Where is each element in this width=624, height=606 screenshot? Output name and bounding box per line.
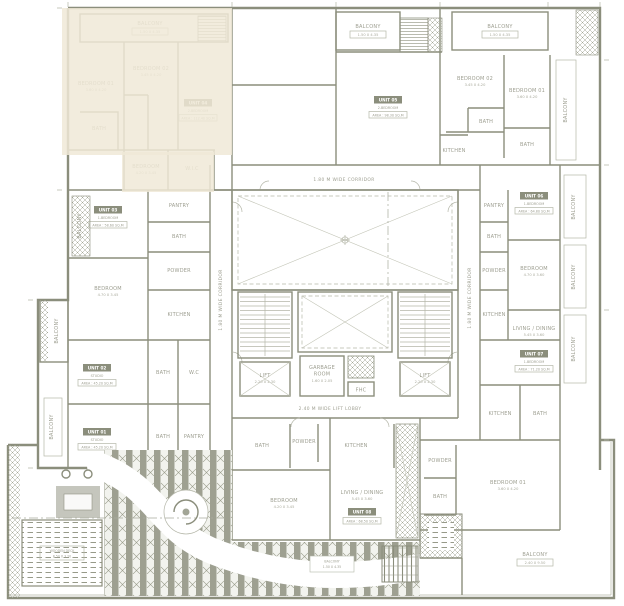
- right-wing: PANTRY BATH POWDER KITCHEN BEDROOM 4.70 …: [420, 165, 586, 440]
- ac-louvre-tm: [400, 18, 428, 52]
- room-label-balcony-tm: BALCONY: [355, 24, 381, 30]
- central-core: LIFT 2.20 X 2.30 LIFT 2.20 X 2.30 GARBAG…: [232, 290, 458, 396]
- unit-05-name: UNIT 05: [379, 98, 398, 103]
- lift-right-dims: 2.20 X 2.30: [415, 380, 436, 384]
- unit-03-area: AREA : 58.60 SQ.M: [92, 223, 123, 227]
- top-right-wing: BALCONY 1.50 X 4.35 BEDROOM 02 3.45 X 4.…: [440, 10, 598, 165]
- unit-02-area: AREA : 45.20 SQ.M: [81, 381, 112, 385]
- lift-left-dims: 2.20 X 2.30: [255, 380, 276, 384]
- unit-08-label[interactable]: UNIT 08 AREA : 68.50 SQ.M: [343, 508, 381, 524]
- room-label-pantry-l2: PANTRY: [184, 434, 205, 440]
- stair-left: [238, 292, 292, 358]
- room-label-bath-l2: BATH: [156, 370, 170, 376]
- unit-06-label[interactable]: UNIT 06 1-BEDROOM AREA : 64.80 SQ.M: [515, 192, 553, 214]
- room-label-bed-bc: BEDROOM: [270, 498, 298, 504]
- unit-01-type: STUDIO: [91, 438, 104, 442]
- room-label-kitchen-r: KITCHEN: [482, 312, 505, 318]
- room-label-powder-br: POWDER: [428, 458, 452, 464]
- room-label-balcony-lw3: BALCONY: [49, 414, 55, 440]
- unit-06-type: 1-BEDROOM: [524, 202, 545, 206]
- room-label-balcony-lw2: BALCONY: [54, 318, 60, 344]
- fhc-cabinet: FHC: [348, 382, 374, 396]
- room-label-bath2-tr: BATH: [520, 142, 534, 148]
- room-label-powder-r: POWDER: [482, 268, 506, 274]
- terrace-edge-hatch: [8, 445, 20, 598]
- lift-lobby-label: 2.40 M WIDE LIFT LOBBY: [299, 406, 362, 412]
- room-dims-bed-l: 4.70 X 3.45: [98, 293, 119, 297]
- room-dims-balcony-tm: 1.50 X 4.35: [358, 33, 379, 37]
- selected-unit-highlight[interactable]: [62, 8, 232, 192]
- unit-02-type: STUDIO: [91, 374, 104, 378]
- room-dims-living-r: 5.45 X 3.60: [524, 333, 545, 337]
- room-dims-bed-bc: 4.20 X 3.45: [274, 505, 295, 509]
- room-label-living-r: LIVING / DINING: [513, 326, 556, 332]
- fhc-label: FHC: [356, 388, 367, 394]
- corridors: 1.80 M WIDE CORRIDOR 1.80 M WIDE CORRIDO…: [210, 177, 480, 427]
- core-shaft: [298, 292, 392, 352]
- room-label-bed01-tr: BEDROOM 01: [509, 88, 545, 94]
- room-label-powder-bc: POWDER: [292, 439, 316, 445]
- garbage-label-2: ROOM: [314, 372, 330, 378]
- top-middle-wing: BALCONY 1.50 X 4.35 UNIT 05 2-BEDROOM AR…: [232, 8, 600, 165]
- room-label-bed-l: BEDROOM: [94, 286, 122, 292]
- room-label-bath-r2: BATH: [533, 411, 547, 417]
- trellis-grid: [382, 546, 418, 582]
- unit-07-area: AREA : 71.20 SQ.M: [518, 367, 549, 371]
- balcony-hatch-lw2: [40, 300, 48, 362]
- deck-dims: 8.50 X 3.20: [53, 555, 71, 559]
- room-label-kitchen-l: KITCHEN: [167, 312, 190, 318]
- unit-03-label[interactable]: UNIT 03 1-BEDROOM AREA : 58.60 SQ.M: [89, 206, 127, 228]
- room-dims-bed02-tr: 3.45 X 4.20: [465, 83, 486, 87]
- terrace-balcony-left-label: BALCONY 1.50 X 4.35: [310, 556, 354, 572]
- room-dims-balcony-terr: 2.40 X 9.50: [525, 561, 546, 565]
- room-label-wc-l: W.C: [189, 370, 199, 376]
- room-label-bed02-tr: BEDROOM 02: [457, 76, 493, 82]
- jacuzzi-planter: [420, 514, 462, 558]
- left-wing: PANTRY BATH POWDER KITCHEN BATH W.C BATH…: [40, 165, 210, 468]
- room-dims-bed01-tr: 3.60 X 4.20: [517, 95, 538, 99]
- lift-right-label: LIFT: [420, 373, 432, 379]
- room-label-bath-l1: BATH: [172, 234, 186, 240]
- unit-01-area: AREA : 45.20 SQ.M: [81, 445, 112, 449]
- room-label-kitchen-r2: KITCHEN: [488, 411, 511, 417]
- lift-left: LIFT 2.20 X 2.30: [240, 362, 290, 396]
- room-label-bed-br: BEDROOM 01: [490, 480, 526, 486]
- unit-05-area: AREA : 98.30 SQ.M: [372, 113, 403, 117]
- corridor-walls: [210, 190, 480, 418]
- room-label-pantry-l: PANTRY: [169, 203, 190, 209]
- room-label-balcony-terr: BALCONY: [522, 552, 548, 558]
- room-dims-living-bc: 5.45 X 3.60: [352, 497, 373, 501]
- garbage-dims: 1.60 X 2.05: [312, 379, 333, 383]
- unit-08-name: UNIT 08: [353, 510, 372, 515]
- unit-07-name: UNIT 07: [525, 352, 544, 357]
- unit-02-label[interactable]: UNIT 02 STUDIO AREA : 45.20 SQ.M: [78, 364, 116, 386]
- room-label-balcony-chip: BALCONY: [324, 560, 339, 564]
- room-label-living-bc: LIVING / DINING: [341, 490, 384, 496]
- floor-plan-canvas: BALCONY 1.50 X 4.35 BEDROOM 01 3.60 X 4.…: [0, 0, 624, 606]
- corridor-right-label: 1.80 M WIDE CORRIDOR: [467, 267, 473, 328]
- unit-08-walls: [232, 418, 420, 558]
- atrium-void: [232, 190, 458, 290]
- garbage-label-1: GARBAGE: [309, 365, 335, 371]
- room-label-balcony-tr-side: BALCONY: [563, 97, 569, 123]
- unit-03-name: UNIT 03: [99, 208, 118, 213]
- room-dims-bed-r: 4.70 X 3.60: [524, 273, 545, 277]
- unit-05-type: 2-BEDROOM: [378, 106, 399, 110]
- room-label-balcony-tr: BALCONY: [487, 24, 513, 30]
- unit-02-name: UNIT 02: [88, 366, 107, 371]
- room-label-kitchen-tr: KITCHEN: [442, 148, 465, 154]
- door-arcs: [232, 181, 458, 427]
- room-dims-balcony-chip: 1.50 X 4.35: [323, 565, 341, 569]
- terrace-landscape: WOODEN DECK 8.50 X 3.20 BALCONY 2.40 X 9…: [8, 445, 553, 598]
- room-label-powder-l: POWDER: [167, 268, 191, 274]
- unit-05-label[interactable]: UNIT 05 2-BEDROOM AREA : 98.30 SQ.M: [369, 96, 407, 118]
- unit-08-bottom-center: BATH POWDER KITCHEN BEDROOM 4.20 X 3.45 …: [232, 418, 420, 558]
- room-label-balcony-re3: BALCONY: [571, 336, 577, 362]
- room-label-bath1-tr: BATH: [479, 119, 493, 125]
- room-dims-balcony-tr: 1.50 X 4.35: [490, 33, 511, 37]
- lift-left-label: LIFT: [260, 373, 272, 379]
- unit-01-name: UNIT 01: [88, 430, 107, 435]
- unit-08-area: AREA : 68.50 SQ.M: [346, 519, 377, 523]
- room-label-balcony-lw1: BALCONY: [77, 213, 83, 239]
- balcony-hatch-tr: [576, 10, 598, 55]
- unit-06-name: UNIT 06: [525, 194, 544, 199]
- room-label-bath-bc: BATH: [255, 443, 269, 449]
- shaft-hatch-tm: [428, 18, 442, 52]
- unit-03-type: 1-BEDROOM: [98, 216, 119, 220]
- room-label-bath-l3: BATH: [156, 434, 170, 440]
- room-dims-bed-br: 3.60 X 4.20: [498, 487, 519, 491]
- deck-label: WOODEN DECK: [50, 549, 76, 553]
- unit-07-label[interactable]: UNIT 07 1-BEDROOM AREA : 71.20 SQ.M: [515, 350, 553, 372]
- unit-07-type: 1-BEDROOM: [524, 360, 545, 364]
- room-label-balcony-re2: BALCONY: [571, 264, 577, 290]
- terrace-balcony-right: BALCONY 2.40 X 9.50: [420, 552, 553, 595]
- core-duct-hatch: [348, 356, 374, 378]
- room-label-bath-br: BATH: [433, 494, 447, 500]
- corridor-top-label: 1.80 M WIDE CORRIDOR: [313, 177, 374, 183]
- stair-right: [398, 292, 452, 358]
- corridor-left-label: 1.80 M WIDE CORRIDOR: [218, 269, 224, 330]
- room-label-bath-r1: BATH: [487, 234, 501, 240]
- lift-right: LIFT 2.20 X 2.30: [400, 362, 450, 396]
- room-label-pantry-r: PANTRY: [484, 203, 505, 209]
- room-label-kitchen-bc: KITCHEN: [344, 443, 367, 449]
- wooden-deck: WOODEN DECK 8.50 X 3.20: [22, 520, 102, 586]
- unit-06-area: AREA : 64.80 SQ.M: [518, 209, 549, 213]
- room-label-bed-r: BEDROOM: [520, 266, 548, 272]
- room-label-balcony-re1: BALCONY: [571, 194, 577, 220]
- garbage-room: GARBAGE ROOM 1.60 X 2.05: [300, 356, 344, 396]
- unit-01-label[interactable]: UNIT 01 STUDIO AREA : 45.20 SQ.M: [78, 428, 116, 450]
